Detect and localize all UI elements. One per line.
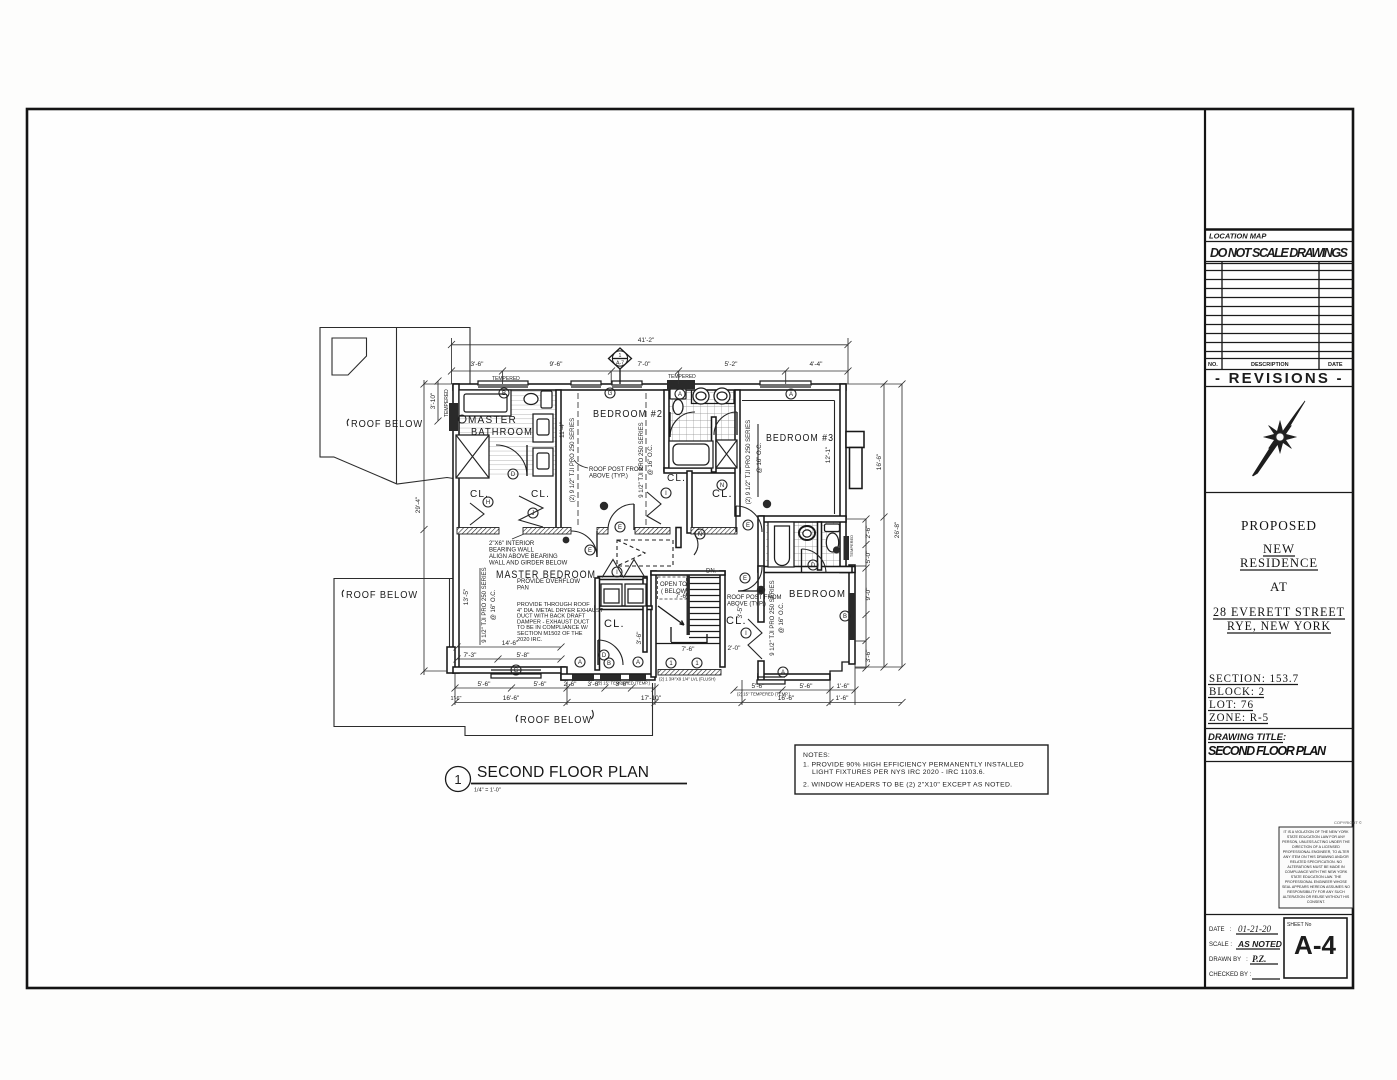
svg-text:A: A [636, 660, 640, 666]
svg-text:28 EVERETT STREET: 28 EVERETT STREET [1213, 605, 1345, 619]
svg-text:5'-6": 5'-6" [752, 683, 766, 690]
svg-text:SHEET No: SHEET No [1287, 922, 1312, 928]
svg-text:PROFESSIONAL ENGINEER, TO ALTE: PROFESSIONAL ENGINEER, TO ALTER [1283, 850, 1350, 854]
svg-text:3'-6": 3'-6" [865, 649, 872, 663]
svg-text:1. PROVIDE 90% HIGH EFFICIENCY: 1. PROVIDE 90% HIGH EFFICIENCY PERMANENT… [803, 762, 1024, 769]
svg-text:ROOF BELOW: ROOF BELOW [520, 715, 592, 726]
svg-text:@ 16" O.C.: @ 16" O.C. [648, 444, 654, 475]
svg-text:AT: AT [1270, 579, 1288, 594]
svg-text:DATE: DATE [1328, 362, 1343, 368]
svg-text:PAN: PAN [517, 586, 529, 592]
svg-text:7'-6": 7'-6" [676, 593, 690, 600]
svg-text:9 1/2" TJI PRO 250 SERIES: 9 1/2" TJI PRO 250 SERIES [639, 422, 645, 497]
svg-text:(2) 15" TEMPERED (TEMP.): (2) 15" TEMPERED (TEMP.) [597, 681, 651, 686]
svg-text:ANY ITEM ON THIS DRAWING AND/O: ANY ITEM ON THIS DRAWING AND/OR [1283, 855, 1349, 859]
svg-text:4'-4": 4'-4" [810, 361, 824, 368]
svg-text:RYE, NEW YORK: RYE, NEW YORK [1227, 619, 1331, 633]
svg-text:26'-8": 26'-8" [894, 521, 901, 538]
svg-text:B: B [502, 391, 506, 397]
svg-text:SECOND FLOOR PLAN: SECOND FLOOR PLAN [1208, 744, 1327, 758]
svg-text:E: E [743, 576, 747, 582]
svg-text:RESIDENCE: RESIDENCE [1240, 555, 1318, 570]
svg-text:NOTES:: NOTES: [803, 752, 830, 759]
svg-text:29'-4": 29'-4" [415, 496, 422, 513]
svg-text:CL.: CL. [667, 473, 686, 484]
svg-text:TEMPERED: TEMPERED [444, 389, 450, 417]
svg-text:ROOF POST FROM: ROOF POST FROM [589, 467, 644, 473]
svg-text:16'-6": 16'-6" [876, 453, 883, 470]
svg-text:PERSON, UNLESS ACTING UNDER TH: PERSON, UNLESS ACTING UNDER THE [1282, 840, 1350, 844]
svg-text:- REVISIONS -: - REVISIONS - [1215, 370, 1343, 387]
svg-text:5'-6": 5'-6" [534, 681, 548, 688]
svg-text:7'-6": 7'-6" [682, 646, 696, 653]
svg-text:ALTERATION OR REUSE WITHOUT HI: ALTERATION OR REUSE WITHOUT HIS [1283, 895, 1350, 899]
svg-text:(2) 1 3/4"X9 1/4" LVL (FLUSH): (2) 1 3/4"X9 1/4" LVL (FLUSH) [659, 677, 716, 682]
svg-text:1: 1 [619, 353, 622, 359]
svg-text:BATHROOM: BATHROOM [471, 427, 533, 438]
svg-text:TEMPERED: TEMPERED [492, 376, 520, 382]
svg-text:BEARING WALL: BEARING WALL [489, 548, 534, 554]
svg-text:G: G [608, 391, 613, 397]
svg-text:SCALE :: SCALE : [1209, 942, 1232, 948]
svg-text:D: D [511, 472, 516, 478]
svg-text:CHECKED BY :: CHECKED BY : [1209, 972, 1252, 978]
svg-text:N: N [720, 483, 724, 489]
svg-text:5'-6": 5'-6" [800, 683, 814, 690]
svg-text:PROPOSED: PROPOSED [1241, 518, 1317, 533]
svg-text:3'-6": 3'-6" [636, 631, 643, 645]
svg-text:ALTERATIONS MUST BE MADE IN: ALTERATIONS MUST BE MADE IN [1287, 865, 1345, 869]
svg-text:ABOVE (TYP.): ABOVE (TYP.) [589, 474, 628, 480]
svg-text:9 1/2" TJI PRO 250 SERIES: 9 1/2" TJI PRO 250 SERIES [482, 567, 488, 642]
svg-text:CL.: CL. [726, 615, 747, 627]
svg-text:LOT: 76: LOT: 76 [1209, 699, 1254, 711]
svg-text:CONSENT.: CONSENT. [1307, 900, 1325, 904]
svg-text:DATE :: DATE : [1209, 927, 1232, 933]
svg-text:CL.: CL. [531, 489, 550, 500]
svg-text:STATE EDUCATION LAW. THE: STATE EDUCATION LAW. THE [1291, 875, 1342, 879]
svg-text:E: E [588, 548, 592, 554]
svg-text:N: N [698, 532, 702, 538]
svg-text:AS NOTED: AS NOTED [1237, 939, 1282, 949]
svg-text:SECTION: 153.7: SECTION: 153.7 [1209, 673, 1299, 685]
svg-text:A: A [678, 392, 682, 398]
svg-text:CL.: CL. [604, 618, 625, 630]
svg-text:01-21-20: 01-21-20 [1238, 924, 1271, 934]
svg-text:IT IS A VIOLATION OF THE NEW Y: IT IS A VIOLATION OF THE NEW YORK [1283, 830, 1349, 834]
svg-text:RELATED SPECIFICATION. NO: RELATED SPECIFICATION. NO [1290, 860, 1342, 864]
svg-text:TEMPERED: TEMPERED [668, 374, 696, 380]
svg-text:BEDROOM #3: BEDROOM #3 [766, 432, 834, 444]
svg-text:17'-10": 17'-10" [641, 695, 662, 702]
svg-text:DO NOT SCALE DRAWINGS: DO NOT SCALE DRAWINGS [1210, 246, 1349, 260]
svg-text:SECOND FLOOR PLAN: SECOND FLOOR PLAN [477, 764, 651, 781]
svg-text:2. WINDOW HEADERS TO BE (2) 2": 2. WINDOW HEADERS TO BE (2) 2"X10" EXCEP… [803, 782, 1012, 789]
svg-text:2020 IRC.: 2020 IRC. [517, 637, 543, 643]
svg-text:ROOF BELOW: ROOF BELOW [351, 419, 423, 430]
svg-text:(2) 9 1/2" TJI PRO 250 SERIES: (2) 9 1/2" TJI PRO 250 SERIES [570, 418, 576, 502]
svg-text:A: A [789, 392, 793, 398]
svg-text:1'-6": 1'-6" [837, 683, 851, 690]
svg-text:E: E [618, 525, 622, 531]
svg-text:1/4" = 1'-0": 1/4" = 1'-0" [474, 788, 501, 794]
svg-text:9'-6": 9'-6" [550, 361, 564, 368]
svg-text:MASTER: MASTER [468, 415, 517, 426]
svg-text:E: E [746, 523, 750, 529]
svg-text:2'-0": 2'-0" [728, 645, 742, 652]
svg-text:1'-6": 1'-6" [451, 696, 462, 702]
svg-text:SEAL APPEARS HEREON ASSUMES NO: SEAL APPEARS HEREON ASSUMES NO [1282, 885, 1350, 889]
svg-text:9'-0": 9'-0" [865, 587, 872, 601]
svg-text:A-4: A-4 [1294, 930, 1336, 960]
svg-text:COMPLIANCE WITH THE NEW YORK: COMPLIANCE WITH THE NEW YORK [1285, 870, 1348, 874]
svg-text:LOCATION MAP: LOCATION MAP [1209, 232, 1267, 241]
svg-text:LIGHT FIXTURES PER NYS IRC 202: LIGHT FIXTURES PER NYS IRC 2020 - IRC 11… [812, 769, 985, 776]
svg-text:(2) 15" TEMPERED (TEMP.): (2) 15" TEMPERED (TEMP.) [737, 692, 791, 697]
svg-text:2'-6": 2'-6" [564, 681, 578, 688]
svg-text:@ 16" O.C.: @ 16" O.C. [779, 602, 785, 633]
svg-text:1: 1 [454, 772, 461, 787]
svg-text:2'-6": 2'-6" [865, 525, 872, 539]
svg-text:CL.: CL. [470, 489, 489, 500]
svg-text:P.Z.: P.Z. [1252, 954, 1266, 964]
svg-text:7'-3": 7'-3" [464, 652, 478, 659]
svg-text:ABOVE (TYP.): ABOVE (TYP.) [727, 602, 766, 608]
svg-text:16'-6": 16'-6" [503, 695, 520, 702]
svg-text:DN.: DN. [706, 569, 717, 575]
svg-text:BEDROOM: BEDROOM [789, 588, 846, 600]
svg-text:COPYRIGHT ©: COPYRIGHT © [1334, 820, 1362, 825]
svg-text:ALIGN ABOVE BEARING: ALIGN ABOVE BEARING [489, 554, 558, 560]
svg-text:NO.: NO. [1208, 362, 1218, 368]
svg-text:3'-10": 3'-10" [430, 392, 437, 409]
svg-text:DRAWING TITLE:: DRAWING TITLE: [1208, 732, 1286, 743]
svg-text:41'-2": 41'-2" [638, 337, 655, 344]
svg-text:WALL AND GIRDER BELOW: WALL AND GIRDER BELOW [489, 561, 568, 567]
svg-text:@ 16" O.C.: @ 16" O.C. [491, 589, 497, 620]
svg-text:DRAWN BY :: DRAWN BY : [1209, 957, 1248, 963]
svg-text:A: A [781, 670, 785, 676]
svg-text:J: J [532, 511, 535, 517]
svg-text:9 1/2" TJI PRO 250 SERIES: 9 1/2" TJI PRO 250 SERIES [770, 580, 776, 655]
svg-text:5'-2": 5'-2" [725, 361, 739, 368]
svg-text:5'-6": 5'-6" [478, 681, 492, 688]
svg-text:DIRECTION OF A LICENSED: DIRECTION OF A LICENSED [1292, 845, 1340, 849]
svg-text:12'-1": 12'-1" [825, 446, 832, 463]
svg-text:BEDROOM #2: BEDROOM #2 [593, 408, 663, 420]
svg-text:11'-4": 11'-4" [559, 421, 566, 438]
svg-text:RESPONSIBILITY FOR ANY SUCH: RESPONSIBILITY FOR ANY SUCH [1287, 890, 1345, 894]
svg-text:PROVIDE OVERFLOW: PROVIDE OVERFLOW [517, 579, 580, 585]
svg-text:13'-5": 13'-5" [463, 588, 470, 605]
svg-text:NEW: NEW [1263, 541, 1295, 556]
svg-text:A-7: A-7 [616, 361, 624, 367]
svg-text:@ 16" O.C.: @ 16" O.C. [757, 442, 763, 473]
svg-text:(2) 9 1/2" TJI PRO 250 SERIES: (2) 9 1/2" TJI PRO 250 SERIES [746, 420, 752, 504]
svg-text:5'-8": 5'-8" [517, 652, 531, 659]
svg-text:ROOF BELOW: ROOF BELOW [346, 590, 418, 601]
svg-text:2"X6" INTERIOR: 2"X6" INTERIOR [489, 541, 535, 547]
svg-text:DESCRIPTION: DESCRIPTION [1251, 362, 1289, 368]
svg-text:D: D [811, 563, 816, 569]
svg-text:B: B [843, 614, 847, 620]
svg-text:A: A [578, 660, 582, 666]
svg-text:OPEN TO: OPEN TO [660, 582, 687, 588]
svg-text:H: H [486, 500, 490, 506]
svg-text:B: B [607, 661, 611, 667]
svg-text:PROFESSIONAL ENGINEER WHOSE: PROFESSIONAL ENGINEER WHOSE [1285, 880, 1348, 884]
svg-text:STATE EDUCATION LAW FOR ANY: STATE EDUCATION LAW FOR ANY [1287, 835, 1346, 839]
svg-text:G: G [514, 668, 519, 674]
svg-text:BLOCK: 2: BLOCK: 2 [1209, 686, 1265, 698]
svg-text:1'-6": 1'-6" [836, 695, 850, 702]
svg-text:3'-6": 3'-6" [471, 361, 485, 368]
svg-text:ZONE: R-5: ZONE: R-5 [1209, 712, 1269, 724]
svg-text:7'-0": 7'-0" [638, 361, 652, 368]
svg-text:D: D [602, 653, 607, 659]
svg-text:5'-0": 5'-0" [865, 550, 872, 564]
svg-text:TEMPERED: TEMPERED [849, 535, 854, 557]
